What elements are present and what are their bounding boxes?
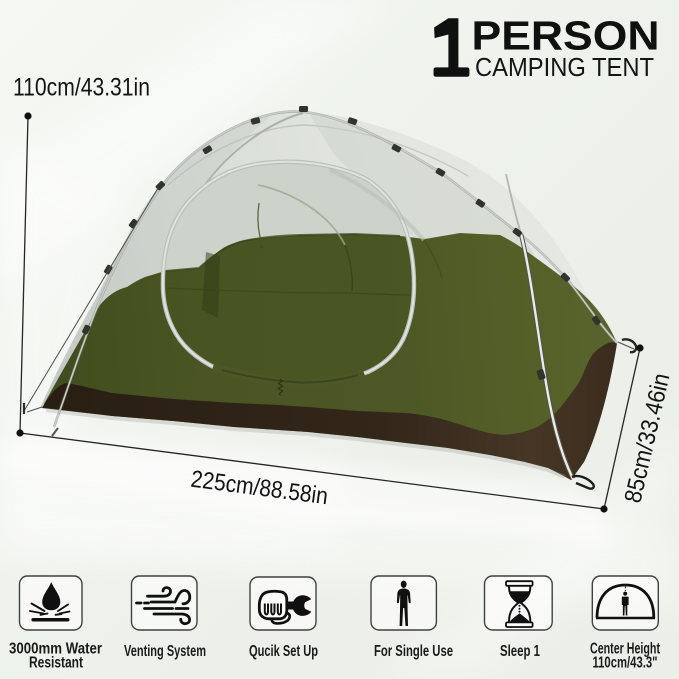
svg-text:Qucik Set Up: Qucik Set Up [249,643,318,660]
svg-text:CAMPING TENT: CAMPING TENT [475,54,654,82]
svg-text:110cm/43.3": 110cm/43.3" [593,654,658,671]
svg-text:110cm/43.31in: 110cm/43.31in [13,74,150,102]
svg-text:Resistant: Resistant [29,654,83,671]
svg-text:Venting System: Venting System [124,643,206,660]
svg-text:Sleep 1: Sleep 1 [500,643,540,660]
svg-text:PERSON: PERSON [472,12,660,58]
svg-text:For Single Use: For Single Use [374,643,453,660]
